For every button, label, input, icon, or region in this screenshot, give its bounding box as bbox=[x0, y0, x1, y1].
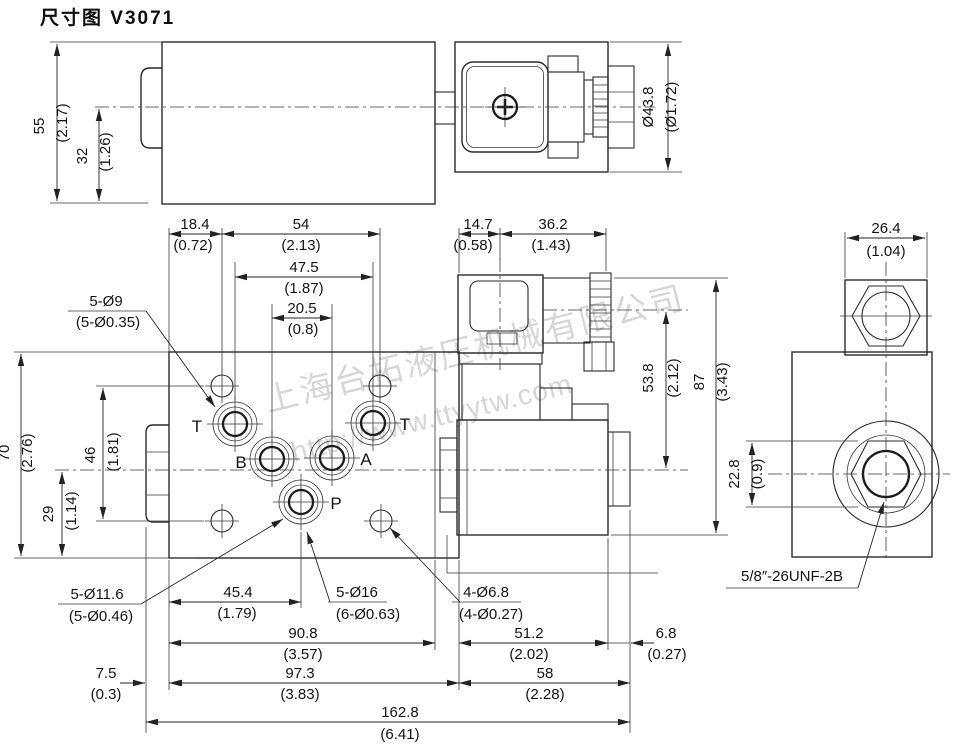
dim-87-mm: 87 bbox=[691, 374, 708, 391]
port-p bbox=[273, 474, 329, 530]
callout-5xd16: 5-Ø16 (6-Ø0.63) bbox=[307, 532, 400, 623]
dim-55-inch: (2.17) bbox=[54, 103, 71, 142]
callout-5xd9: 5-Ø9 (5-Ø0.35) bbox=[68, 293, 215, 407]
dim-53-8-mm: 53.8 bbox=[640, 363, 657, 392]
dim-14-7-mm: 14.7 bbox=[463, 216, 492, 233]
dim-43-8-inch: (Ø1.72) bbox=[663, 82, 680, 133]
dim-43-8-mm: Ø43.8 bbox=[640, 87, 657, 128]
dim-26-4-inch: (1.04) bbox=[866, 243, 905, 260]
dim-29-inch: (1.14) bbox=[63, 491, 80, 530]
port-label-t-right: T bbox=[400, 415, 410, 434]
callout-5xd9-inch: (5-Ø0.35) bbox=[76, 314, 140, 331]
bottom-dimension-rows: 45.4 (1.79) 90.8 (3.57) 51.2 (2.02) 6.8 … bbox=[91, 510, 687, 743]
side-view: 26.4 (1.04) 22.8 (0.9) 5/8″-26UNF-2B bbox=[726, 220, 950, 588]
dim-36-2-inch: (1.43) bbox=[531, 237, 570, 254]
dim-53-8-inch: (2.12) bbox=[665, 358, 682, 397]
dim-26-4-mm: 26.4 bbox=[871, 220, 900, 237]
dim-7-5-mm: 7.5 bbox=[96, 665, 117, 682]
callout-5xd11-6-inch: (5-Ø0.46) bbox=[69, 608, 133, 625]
watermark: 上海台拓液压机械有限公司 http://www.ttyytw.com bbox=[261, 278, 689, 467]
dim-47-5-inch: (1.87) bbox=[284, 280, 323, 297]
dim-45-4-inch: (1.79) bbox=[217, 605, 256, 622]
dim-58-inch: (2.28) bbox=[525, 686, 564, 703]
dim-22-8-mm: 22.8 bbox=[726, 459, 743, 488]
port-label-b: B bbox=[235, 453, 246, 472]
port-label-a: A bbox=[360, 450, 372, 469]
side-plug bbox=[146, 425, 169, 522]
dim-162-8-inch: (6.41) bbox=[380, 726, 419, 743]
solenoid-coil bbox=[457, 420, 608, 535]
dim-45-4-mm: 45.4 bbox=[223, 584, 252, 601]
port-t-left bbox=[207, 396, 263, 452]
dim-51-2-inch: (2.02) bbox=[509, 646, 548, 663]
dim-90-8-inch: (3.57) bbox=[283, 646, 322, 663]
manual-override-cap bbox=[608, 432, 630, 506]
dim-22-8-inch: (0.9) bbox=[749, 459, 766, 490]
dim-14-7-inch: (0.58) bbox=[453, 237, 492, 254]
callout-5xd16-mm: 5-Ø16 bbox=[336, 584, 378, 601]
dim-90-8-mm: 90.8 bbox=[288, 625, 317, 642]
page-title: 尺寸图 V3071 bbox=[40, 6, 175, 29]
dim-46-inch: (1.81) bbox=[105, 432, 122, 471]
dim-20-5-mm: 20.5 bbox=[287, 300, 316, 317]
dim-29-mm: 29 bbox=[40, 506, 57, 523]
dim-6-8-mm: 6.8 bbox=[656, 625, 677, 642]
dim-18-4-inch: (0.72) bbox=[173, 237, 212, 254]
port-label-t-left: T bbox=[192, 417, 202, 436]
dim-20-5-inch: (0.8) bbox=[288, 321, 319, 338]
callout-4xd6-8: 4-Ø6.8 (4-Ø0.27) bbox=[390, 528, 523, 623]
dim-46-mm: 46 bbox=[82, 447, 99, 464]
dim-97-3-mm: 97.3 bbox=[285, 665, 314, 682]
dim-70-inch: (2.76) bbox=[19, 433, 36, 472]
dim-87-inch: (3.43) bbox=[714, 362, 731, 401]
dim-18-4-mm: 18.4 bbox=[180, 216, 209, 233]
dim-51-2-mm: 51.2 bbox=[514, 625, 543, 642]
top-view: 55 (2.17) 32 (1.26) Ø43.8 (Ø1.72) bbox=[31, 42, 682, 204]
port-label-p: P bbox=[330, 494, 341, 513]
dim-7-5-inch: (0.3) bbox=[91, 686, 122, 703]
dim-32-mm: 32 bbox=[74, 148, 91, 165]
callout-5xd9-mm: 5-Ø9 bbox=[89, 293, 122, 310]
dimension-drawing-page: 上海台拓液压机械有限公司 http://www.ttyytw.com 尺寸图 V… bbox=[0, 0, 960, 750]
thread-callout-label: 5/8″-26UNF-2B bbox=[741, 568, 843, 585]
dim-97-3-inch: (3.83) bbox=[280, 686, 319, 703]
dim-58-mm: 58 bbox=[537, 665, 554, 682]
dim-36-2-mm: 36.2 bbox=[538, 216, 567, 233]
callout-5xd16-inch: (6-Ø0.63) bbox=[336, 606, 400, 623]
cartridge-nut bbox=[440, 438, 457, 512]
dim-47-5-mm: 47.5 bbox=[289, 259, 318, 276]
callout-5xd11-6-mm: 5-Ø11.6 bbox=[70, 586, 123, 603]
dim-162-8-mm: 162.8 bbox=[381, 704, 419, 721]
dim-70-mm: 70 bbox=[0, 445, 13, 462]
dim-54-mm: 54 bbox=[293, 216, 310, 233]
dim-6-8-inch: (0.27) bbox=[647, 646, 686, 663]
drawing-canvas: 上海台拓液压机械有限公司 http://www.ttyytw.com 尺寸图 V… bbox=[0, 0, 960, 750]
dim-55-mm: 55 bbox=[31, 118, 48, 135]
callout-4xd6-8-inch: (4-Ø0.27) bbox=[459, 606, 523, 623]
dim-32-inch: (1.26) bbox=[97, 132, 114, 171]
callout-4xd6-8-mm: 4-Ø6.8 bbox=[463, 584, 509, 601]
dim-54-inch: (2.13) bbox=[281, 237, 320, 254]
